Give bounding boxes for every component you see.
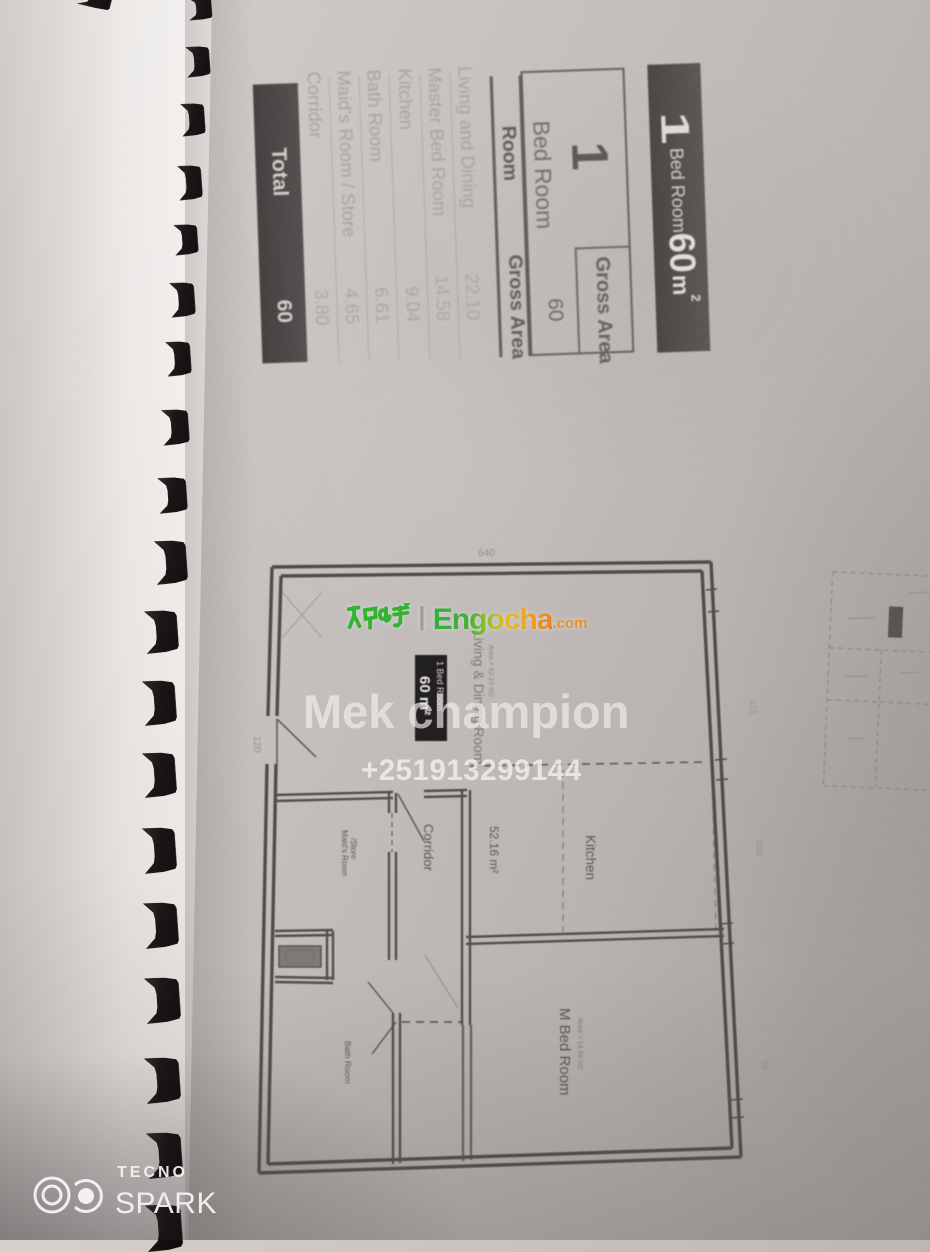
svg-text:Bath Room: Bath Room: [343, 1041, 353, 1084]
svg-text:Kitchen: Kitchen: [583, 835, 598, 880]
svg-text:Area = 14.58 m2: Area = 14.58 m2: [576, 1018, 583, 1070]
svg-text:640: 640: [478, 548, 495, 559]
svg-text:/Store: /Store: [349, 838, 358, 860]
svg-text:Corridor: Corridor: [421, 824, 436, 872]
svg-text:120: 120: [251, 736, 262, 753]
svg-text:110: 110: [748, 700, 758, 714]
svg-text:830: 830: [753, 840, 764, 856]
svg-text:98: 98: [760, 1060, 770, 1070]
svg-text:Maid's Room: Maid's Room: [340, 830, 349, 877]
svg-text:M Bed Room: M Bed Room: [556, 1008, 573, 1096]
svg-text:52.16 m²: 52.16 m²: [487, 826, 501, 873]
